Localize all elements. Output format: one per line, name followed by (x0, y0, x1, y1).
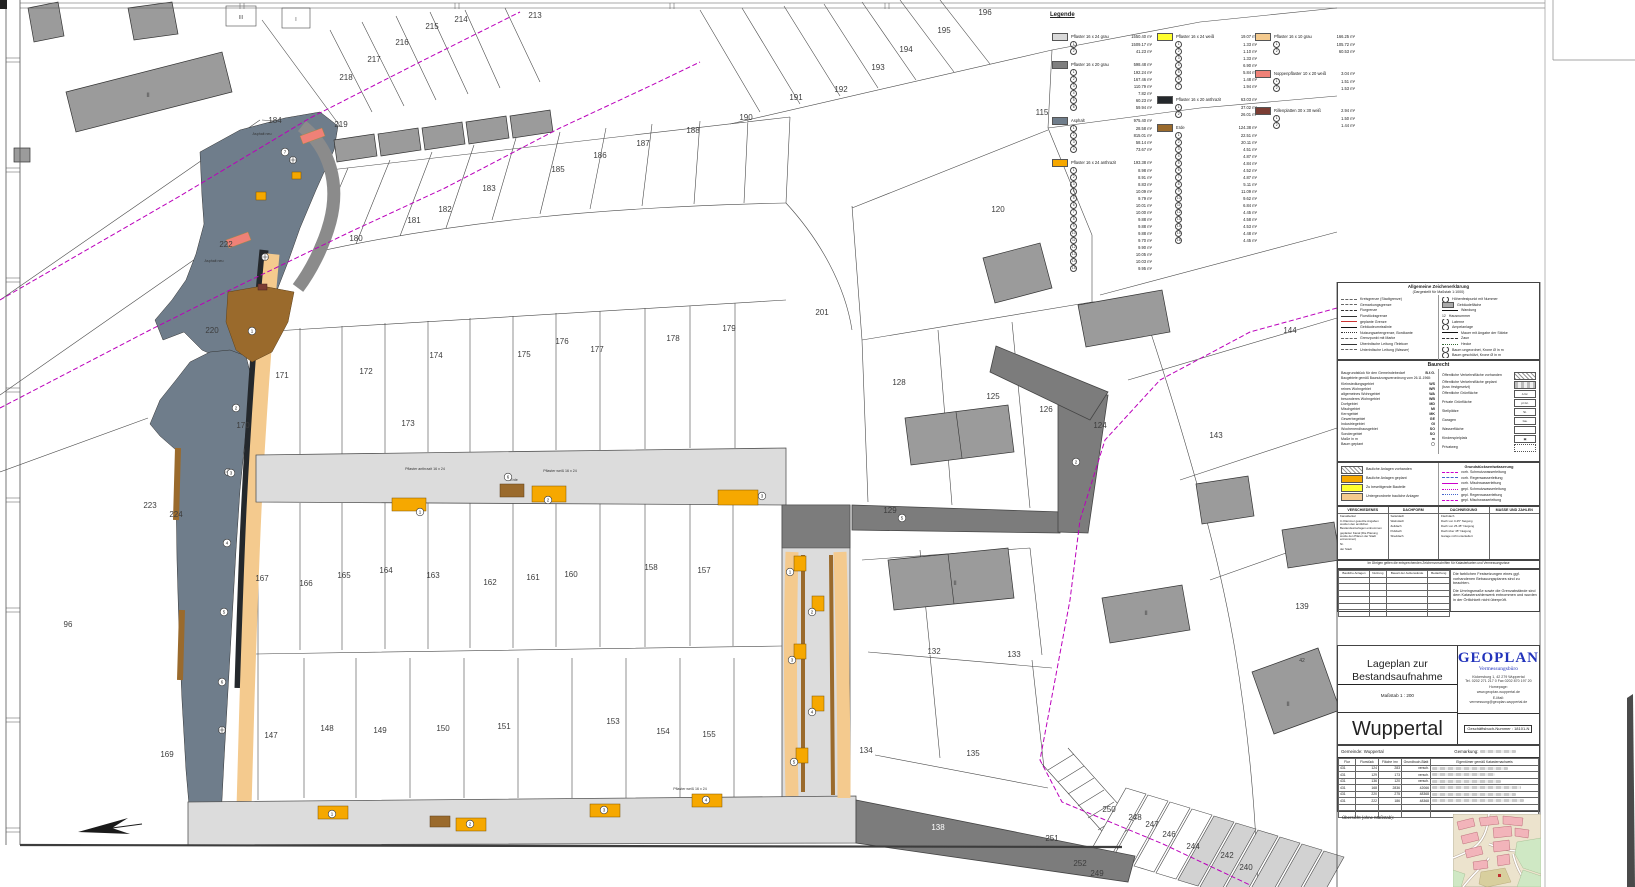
line-symbol-icon (1341, 327, 1357, 328)
parcel-number-label: 124 (1093, 421, 1107, 430)
parcel-number-label: 183 (482, 184, 496, 193)
general-key-item-label: Grenzpunkt mit Marke (1360, 336, 1395, 340)
structure-label: Zu beseitigende Bauteile (1366, 485, 1406, 489)
gemeinde-header: Gemeinde: Wuppertal (1338, 749, 1431, 754)
baurecht-zone-abbr: ◯ (1431, 442, 1435, 446)
legend-item-value: 73.67 m² (1136, 147, 1152, 152)
parcel-number-label: 165 (337, 571, 351, 580)
legend-item-value: 4.48 m² (1243, 231, 1257, 236)
parcel-number-label: 250 (1102, 805, 1116, 814)
parcel-number-label: 246 (1162, 830, 1176, 839)
parcel-number-label: II (1286, 702, 1290, 708)
firm-email: vermessung@geoplan-wuppertal.de (1458, 700, 1539, 704)
roof-table-cell: Pultdach (1391, 530, 1437, 533)
site-plan-sheet: { "legend": { "title": "Legende", "group… (0, 0, 1635, 887)
legend-item: 89.88 m² (1052, 216, 1152, 223)
legend-item-value: 28.58 m² (1136, 126, 1152, 131)
parcel-number-label: 138 (931, 823, 945, 832)
general-key-panel: Allgemeine Zeichenerklärung (Dargestellt… (1337, 282, 1540, 360)
roof-table-cell: Zeltdach (1391, 525, 1437, 528)
general-key-item-label: Flurstücksgrenze (1360, 314, 1387, 318)
parcel-number-label: 240 (1239, 863, 1253, 872)
parcel-number-label: 42 (1299, 658, 1305, 664)
circled-number-marker: 2 (544, 496, 552, 504)
legend-item: 116.84 m² (1157, 202, 1257, 209)
general-key-item-label: Gebäudefläche (1457, 303, 1481, 307)
legend-item: 220.11 m² (1157, 139, 1257, 146)
legend-item-value: 9.79 m² (1138, 196, 1152, 201)
circled-number-marker: 5 (220, 608, 228, 616)
legend-item-value: 8.83 m² (1138, 182, 1152, 187)
general-key-item: Baum geschützt, Krone Ø in m (1442, 353, 1536, 359)
general-key-left-list: Kreisgrenze (Stadtgrenze)Gemarkungsgrenz… (1338, 295, 1438, 361)
legend-column-3: Pflaster 16 x 10 grau166.25 m²1105.72 m²… (1255, 32, 1355, 143)
baurecht-zone-label: Industriegebiet (1341, 422, 1365, 426)
parcel-number-label: 170 (236, 421, 250, 430)
general-key-item-label: Hausnummer (1449, 314, 1471, 318)
legend-swatch (1157, 33, 1173, 41)
legend-group: Noppenpflaster 10 x 20 weiß3.04 m²11.51 … (1255, 69, 1355, 92)
legend-item: 119.70 m² (1052, 237, 1152, 244)
baurecht-zone-abbr: WS (1429, 382, 1435, 386)
baurecht-zone-label: Sondergebiet (1341, 432, 1362, 436)
redacted-owner-text (1432, 767, 1508, 770)
line-symbol-icon (1341, 344, 1357, 345)
baurecht-area-item: Private Grünflächepr.Gr. (1442, 398, 1536, 407)
general-key-item: Unterirdische Leitung (Wasser) (1341, 347, 1435, 353)
circled-number-marker: 2 (466, 820, 474, 828)
general-key-item-label: geplante Grenze (1360, 320, 1387, 324)
roof-table-column: DACHNEIGUNGFlachdachDach von 0-25° Neigu… (1439, 507, 1490, 559)
legend-item: 164.45 m² (1157, 237, 1257, 244)
legend-item: 260.53 m² (1255, 48, 1355, 55)
parcel-number-label: 174 (429, 351, 443, 360)
baurecht-area-swatch: pr.Gr. (1514, 399, 1536, 407)
baurecht-area-label: Privatweg (1442, 445, 1458, 449)
baurecht-area-swatch (1514, 426, 1536, 434)
parcel-number-label: 176 (555, 337, 569, 346)
line-symbol-icon (1442, 338, 1458, 339)
baurecht-area-label: Stellplätze (1442, 409, 1459, 413)
baurecht-area-item: Öffentliche Grünflächeö.Gr. (1442, 389, 1536, 398)
legend-group-label: Pflaster 16 x 20 grau (1071, 62, 1109, 67)
legend-group-label: Rillenplatten 30 x 30 weiß (1274, 108, 1321, 113)
city-name: Wuppertal (1352, 717, 1443, 741)
baurecht-area-label: Wasserfläche (1442, 427, 1464, 431)
legend-item: 34.51 m² (1157, 146, 1257, 153)
roof-table-cell: der Stadt (1340, 548, 1386, 551)
note-line: Im Übrigen gelten die entsprechenden Zei… (1337, 560, 1540, 569)
parcel-number-label: 172 (359, 367, 373, 376)
legend-group: Pflaster 16 x 24 anthrazit193.38 m²18.98… (1052, 158, 1152, 272)
legend-item: 38.83 m² (1052, 181, 1152, 188)
legend-item-value: 815.01 m² (1134, 133, 1152, 138)
legend-item-value: 1.51 m² (1341, 79, 1355, 84)
circled-number-marker: 5 (898, 514, 906, 522)
legend-item-value: 4.87 m² (1243, 154, 1257, 159)
circled-number-marker: 3 (788, 656, 796, 664)
legend-item: 473.67 m² (1052, 146, 1152, 153)
circled-number-marker: 5 (790, 758, 798, 766)
legend-group-label: Pflaster 16 x 10 grau (1274, 34, 1312, 39)
parcel-number-label: 129 (883, 506, 897, 515)
baurecht-area-label: Öffentliche Grünfläche (1442, 391, 1478, 395)
general-key-title: Allgemeine Zeichenerklärung (1338, 283, 1539, 290)
legend-item-value: 4.52 m² (1243, 168, 1257, 173)
baurecht-zone-item: Baum geplant◯ (1341, 442, 1435, 447)
usage-panel: Bauliche AnlagenNutzungBauart der Außenw… (1337, 569, 1540, 612)
legend-item: 3110.79 m² (1052, 83, 1152, 90)
parcel-number-label: 132 (927, 647, 941, 656)
parcel-number-label: 192 (834, 85, 848, 94)
parcel-number-label: 157 (697, 566, 711, 575)
legend-item-value: 9.88 m² (1138, 224, 1152, 229)
general-key-item-label: Kreisgrenze (Stadtgrenze) (1360, 297, 1402, 301)
parcel-number-label: II (146, 93, 150, 99)
legend-swatch (1255, 107, 1271, 115)
baurecht-zone-abbr: MK (1429, 412, 1435, 416)
baurecht-zone-label: Gewerbegebiet (1341, 417, 1365, 421)
legend-swatch (1255, 33, 1271, 41)
legend-item-value: 9.95 m² (1138, 266, 1152, 271)
legend-item: 137.02 m² (1157, 104, 1257, 111)
roof-table-column: MASSE UND ZAHLEN (1490, 507, 1540, 559)
roof-table-cell: Dach von 25-45° Neigung (1441, 525, 1487, 528)
baurecht-zone-abbr: SO (1430, 432, 1435, 436)
usage-table-cell (1428, 610, 1450, 617)
legend-item-value: 9.70 m² (1138, 238, 1152, 243)
parcel-number-label: 190 (739, 113, 753, 122)
baurecht-area-swatch: St. (1514, 408, 1536, 416)
parcel-number-label: 196 (978, 8, 992, 17)
legend-item-value: 167.46 m² (1134, 77, 1152, 82)
legend-item-value: 59.94 m² (1136, 105, 1152, 110)
drainage-item-label: vorh. Mischwasserleitung (1461, 481, 1501, 485)
legend-swatch (1052, 61, 1068, 69)
parcel-number-label: 147 (264, 731, 278, 740)
baurecht-zone-label: Dorfgebiet (1341, 402, 1358, 406)
legend-swatch (1157, 124, 1173, 132)
line-symbol-icon (1442, 494, 1458, 495)
parcel-number-label: 222 (219, 240, 233, 249)
legend-item-value: 1.44 m² (1341, 123, 1355, 128)
baurecht-area-item: GaragenGa. (1442, 416, 1536, 425)
doc-number-box: Geschäftsbuch-Nummer : 18101-N (1464, 725, 1532, 734)
parcel-number-label: 164 (379, 566, 393, 575)
parcel-number-label: II (953, 581, 957, 587)
legend-item-value: 8.98 m² (1138, 168, 1152, 173)
legend-item: 122.51 m² (1157, 132, 1257, 139)
baurecht-area-item: StellplätzeSt. (1442, 407, 1536, 416)
roof-table-cell: Walmdach (1391, 520, 1437, 523)
roof-table-cell: Nr. (1340, 543, 1386, 546)
overview-minimap (1453, 814, 1541, 887)
legend-group-total: 975.40 m² (1134, 118, 1152, 123)
legend-item: 129.90 m² (1052, 244, 1152, 251)
baurecht-intro-abbr: B.f.G. (1425, 371, 1435, 375)
roof-table-cell: Dach von 0-25° Neigung (1441, 520, 1487, 523)
legend-item-value: 4.45 m² (1243, 238, 1257, 243)
roof-table-header: MASSE UND ZAHLEN (1490, 507, 1540, 514)
baurecht-zone-abbr: GI (1431, 422, 1435, 426)
legend-item-number-icon: 2 (1175, 111, 1182, 118)
legend-group-label: Pflaster 16 x 24 weiß (1176, 34, 1214, 39)
parcel-number-label: 120 (991, 205, 1005, 214)
title-block: Lageplan zur Bestandsaufnahme Maßstab 1 … (1337, 645, 1540, 745)
usage-table-cell (1369, 610, 1386, 617)
legend-swatch (1255, 70, 1271, 78)
legend-item-number-icon: 15 (1070, 265, 1077, 272)
overview-section: Übersicht (ohne Maßstab): (1337, 812, 1540, 887)
roof-table-column: VERSCHIEDENESKanaldeckelIn Klammer geset… (1338, 507, 1389, 559)
legend-item-value: 4.84 m² (1243, 161, 1257, 166)
baurecht-left-list: Baugrundstück für den GemeindebedarfB.f.… (1338, 369, 1438, 454)
legend-item: 11.50 m² (1255, 115, 1355, 122)
usage-table-grid: Bauliche AnlagenNutzungBauart der Außenw… (1338, 570, 1450, 617)
legend-item-value: 11.09 m² (1241, 189, 1257, 194)
roof-table-cell: Kanaldeckel (1340, 515, 1386, 518)
legend-item: 11.33 m² (1157, 41, 1257, 48)
note-umring: Die Umringsmaße sowie die Grenzabstände … (1453, 589, 1537, 603)
legend-item-value: 10.03 m² (1136, 259, 1152, 264)
parcel-number-label: 193 (871, 63, 885, 72)
baurecht-zone-label: Wochenendhausgebiet (1341, 427, 1378, 431)
paving-annotation-label: Pflaster weiß 16 x 24 (543, 469, 577, 473)
legend-group-header: Pflaster 16 x 10 grau166.25 m² (1255, 32, 1355, 41)
baurecht-zone-label: allgemeines Wohngebiet (1341, 392, 1380, 396)
legend-item: 109.88 m² (1052, 230, 1152, 237)
structure-item: Zu beseitigende Bauteile (1341, 483, 1435, 492)
parcel-number-label: 178 (666, 334, 680, 343)
legend-item-value: 9.88 m² (1138, 217, 1152, 222)
usage-table: Bauliche AnlagenNutzungBauart der Außenw… (1338, 570, 1451, 611)
structure-swatch (1341, 493, 1363, 501)
legend-item-value: 192.24 m² (1134, 70, 1152, 75)
parcel-number-label: 217 (367, 55, 381, 64)
roof-table-header: VERSCHIEDENES (1338, 507, 1388, 514)
paving-annotation-label: Asphalt neu (253, 132, 272, 136)
parcel-number-label: 186 (593, 151, 607, 160)
parcel-number-label: 171 (275, 371, 289, 380)
legend-item: 64.52 m² (1157, 167, 1257, 174)
parcel-number-label: 96 (64, 620, 73, 629)
legend-group: Pflaster 16 x 20 grau598.48 m²1192.24 m²… (1052, 60, 1152, 111)
legend-item-number-icon: 2 (1273, 48, 1280, 55)
general-key-item-label: Mauer mit Angabe der Stärke (1461, 331, 1508, 335)
structure-label: Bauliche Anlagen vorhanden (1366, 467, 1412, 471)
usage-table-cell (1386, 610, 1428, 617)
drainage-item-label: gepl. Regenwasserleitung (1461, 493, 1502, 497)
drainage-item: gepl. Mischwasserleitung (1442, 498, 1536, 504)
baurecht-area-label: Garagen (1442, 418, 1456, 422)
parcel-number-label: 251 (1045, 834, 1059, 843)
legend-group: Asphalt975.40 m²128.58 m²2815.01 m²358.1… (1052, 116, 1152, 153)
roof-table-cell: Garage nicht unterkellert (1441, 535, 1487, 538)
parcel-number-label: 155 (702, 730, 716, 739)
legend-item: 560.23 m² (1052, 97, 1152, 104)
baurecht-zone-abbr: MD (1429, 402, 1435, 406)
line-symbol-icon (1341, 349, 1357, 350)
baurecht-intro-label: Baugrundstück für den Gemeindebedarf (1341, 371, 1405, 375)
roof-table-cell: Dach über 45° Neigung (1441, 530, 1487, 533)
firm-homepage: www.geoplan-wuppertal.de (1458, 690, 1539, 694)
parcel-number-label: I (295, 17, 296, 23)
parcel-number-label: 244 (1186, 842, 1200, 851)
parcel-number-label: 163 (426, 571, 440, 580)
legend-item-value: 9.90 m² (1138, 245, 1152, 250)
parcel-number-label: 153 (606, 717, 620, 726)
legend-item-value: 60.23 m² (1136, 98, 1152, 103)
general-key-item-label: Laterne (1452, 320, 1464, 324)
legend-item: 18.98 m² (1052, 167, 1152, 174)
legend-group-label: Asphalt (1071, 118, 1085, 123)
baurecht-area-label: Kinderspielplatz (1442, 436, 1467, 440)
legend-item-number-icon: 4 (1070, 146, 1077, 153)
legend-group-total: 598.48 m² (1134, 62, 1152, 67)
legend-group-header: Pflaster 16 x 24 anthrazit193.38 m² (1052, 158, 1152, 167)
parcel-number-label: 149 (373, 726, 387, 735)
baurecht-area-swatch (1514, 372, 1536, 380)
parcel-number-label: 158 (644, 563, 658, 572)
circled-number-marker: 1 (248, 327, 256, 335)
legend-item-value: 8.91 m² (1138, 175, 1152, 180)
parcel-number-label: 247 (1145, 820, 1159, 829)
legend-group-header: Erde124.38 m² (1157, 123, 1257, 132)
structure-item: Bauliche Anlagen geplant (1341, 474, 1435, 483)
legend-group-header: Rillenplatten 30 x 30 weiß2.94 m² (1255, 106, 1355, 115)
legend-item: 109.62 m² (1157, 195, 1257, 202)
general-key-item-label: Gemarkungsgrenze (1360, 303, 1392, 307)
legend-item: 124.45 m² (1157, 209, 1257, 216)
parcel-number-label: 180 (349, 234, 363, 243)
parcel-number-label: 160 (564, 570, 578, 579)
legend-item-value: 1.53 m² (1341, 86, 1355, 91)
legend-swatch (1052, 159, 1068, 167)
doc-number: 18101-N (1514, 726, 1529, 731)
baurecht-note: Baugebiete gemäß Baunutzungsverordnung v… (1341, 377, 1435, 381)
baurecht-right-list: Öffentliche Verkehrsfläche vorhandenÖffe… (1438, 369, 1539, 454)
line-symbol-icon (1341, 338, 1357, 339)
structure-swatch (1341, 466, 1363, 474)
baurecht-zone-label: Kerngebiet (1341, 412, 1358, 416)
firm-logo: GEOPLAN (1458, 649, 1539, 667)
legend-item: 55.84 m² (1157, 69, 1257, 76)
circled-number-marker: 2 (808, 608, 816, 616)
legend-item-value: 4.58 m² (1243, 217, 1257, 222)
circled-number-marker: 1 (328, 810, 336, 818)
baurecht-zone-label: Baum geplant (1341, 442, 1363, 446)
legend-group-label: Erde (1176, 125, 1185, 130)
drainage-item-label: vorh. Schmutzwasserleitung (1461, 470, 1506, 474)
baurecht-zone-abbr: SO (1430, 427, 1435, 431)
parcel-number-label: 252 (1073, 859, 1087, 868)
circled-number-marker: 2 (1072, 458, 1080, 466)
circled-number-marker: 2 (232, 404, 240, 412)
plan-title: Lageplan zur Bestandsaufnahme (1338, 658, 1457, 685)
legend-item: 46.90 m² (1157, 62, 1257, 69)
baurecht-area-item: Privatweg (1442, 443, 1536, 452)
parcel-number-label: 218 (339, 73, 353, 82)
legend-item: 241.23 m² (1052, 48, 1152, 55)
legend-item: 226.01 m² (1157, 111, 1257, 118)
legend-item: 47.82 m² (1052, 90, 1152, 97)
roof-table-header: DACHFORM (1389, 507, 1439, 514)
baurecht-area-swatch: ▣ (1514, 435, 1536, 443)
baurecht-zone-abbr: MI (1431, 407, 1435, 411)
legend-item-value: 10.09 m² (1136, 189, 1152, 194)
legend-title: Legende (1050, 12, 1350, 18)
parcel-number-label: 173 (401, 419, 415, 428)
scan-corner-dark (0, 0, 7, 9)
plan-notes: Die farblichen Festsetzungen eines ggf. … (1451, 570, 1539, 611)
paving-annotation-label: Asphalt neu (205, 259, 224, 263)
parcel-number-label: 134 (859, 746, 873, 755)
legend-item: 134.58 m² (1157, 216, 1257, 223)
baurecht-area-swatch (1514, 444, 1536, 452)
structures-panel: Bauliche Anlagen vorhandenBauliche Anlag… (1337, 462, 1540, 506)
baurecht-area-label: Öffentliche Verkehrsfläche geplant (bzw.… (1442, 380, 1504, 389)
parcel-number-label: 184 (268, 116, 282, 125)
legend-item-value: 1509.17 m² (1131, 42, 1152, 47)
parcel-number-label: 175 (517, 350, 531, 359)
circled-number-marker: 6 (218, 678, 226, 686)
legend-item: 28.91 m² (1052, 174, 1152, 181)
legend-item: 1105.72 m² (1255, 41, 1355, 48)
parcel-number-label: 248 (1128, 813, 1142, 822)
structures-list: Bauliche Anlagen vorhandenBauliche Anlag… (1338, 463, 1438, 505)
structure-label: Untergeordnete bauliche Anlagen (1366, 494, 1419, 498)
parcel-number-label: 213 (528, 11, 542, 20)
line-symbol-icon (1341, 321, 1357, 322)
circled-number-marker: 3 (758, 492, 766, 500)
legend-group: Pflaster 16 x 24 weiß19.07 m²11.33 m²21.… (1157, 32, 1257, 90)
line-symbol-icon (1341, 310, 1357, 311)
redacted-owner-text (1432, 799, 1524, 802)
drainage-item-label: gepl. Schmutzwasserleitung (1461, 487, 1506, 491)
parcel-number-label: 201 (815, 308, 829, 317)
legend-item: 659.94 m² (1052, 104, 1152, 111)
paving-annotation-label: Pflaster anthrazit 16 x 24 (405, 467, 445, 471)
parcel-table: FlurFlurstückFläche /m²Grundbuch-BlattEi… (1338, 758, 1539, 818)
legend-item: 911.09 m² (1157, 188, 1257, 195)
legend-item: 21.53 m² (1255, 85, 1355, 92)
structure-swatch (1341, 475, 1363, 483)
baurecht-zone-abbr: WA (1429, 392, 1435, 396)
legend-item-number-icon: 2 (1070, 48, 1077, 55)
legend-column-2: Pflaster 16 x 24 weiß19.07 m²11.33 m²21.… (1157, 32, 1257, 249)
legend-item: 144.53 m² (1157, 223, 1257, 230)
legend-group-label: Pflaster 16 x 20 anthrazit (1176, 97, 1221, 102)
line-symbol-icon (1442, 477, 1458, 478)
general-key-item-label: Wandung (1461, 308, 1476, 312)
structure-label: Bauliche Anlagen geplant (1366, 476, 1407, 480)
circled-number-marker: 3 (227, 469, 235, 477)
legend-swatch (1052, 117, 1068, 125)
parcel-number-label: 242 (1220, 851, 1234, 860)
roof-table-cells: SatteldachWalmdachZeltdachPultdachShedda… (1389, 514, 1439, 559)
legend-item: 358.14 m² (1052, 139, 1152, 146)
legend-group-header: Asphalt975.40 m² (1052, 116, 1152, 125)
circled-number-marker: 4 (702, 796, 710, 804)
baurecht-zone-label: reines Wohngebiet (1341, 387, 1371, 391)
roof-table-cell: In Klammer gesetzte Angaben wurden den a… (1340, 520, 1386, 530)
baurecht-zone-abbr: WR (1429, 387, 1435, 391)
general-key-item-label: Höhenfestpunkt mit Nummer (1452, 297, 1498, 301)
legend-item-value: 6.84 m² (1243, 203, 1257, 208)
parcel-number-label: 139 (1295, 602, 1309, 611)
plan-scale: Maßstab 1 : 200 (1338, 693, 1457, 699)
drainage-item-label: gepl. Mischwasserleitung (1461, 498, 1501, 502)
